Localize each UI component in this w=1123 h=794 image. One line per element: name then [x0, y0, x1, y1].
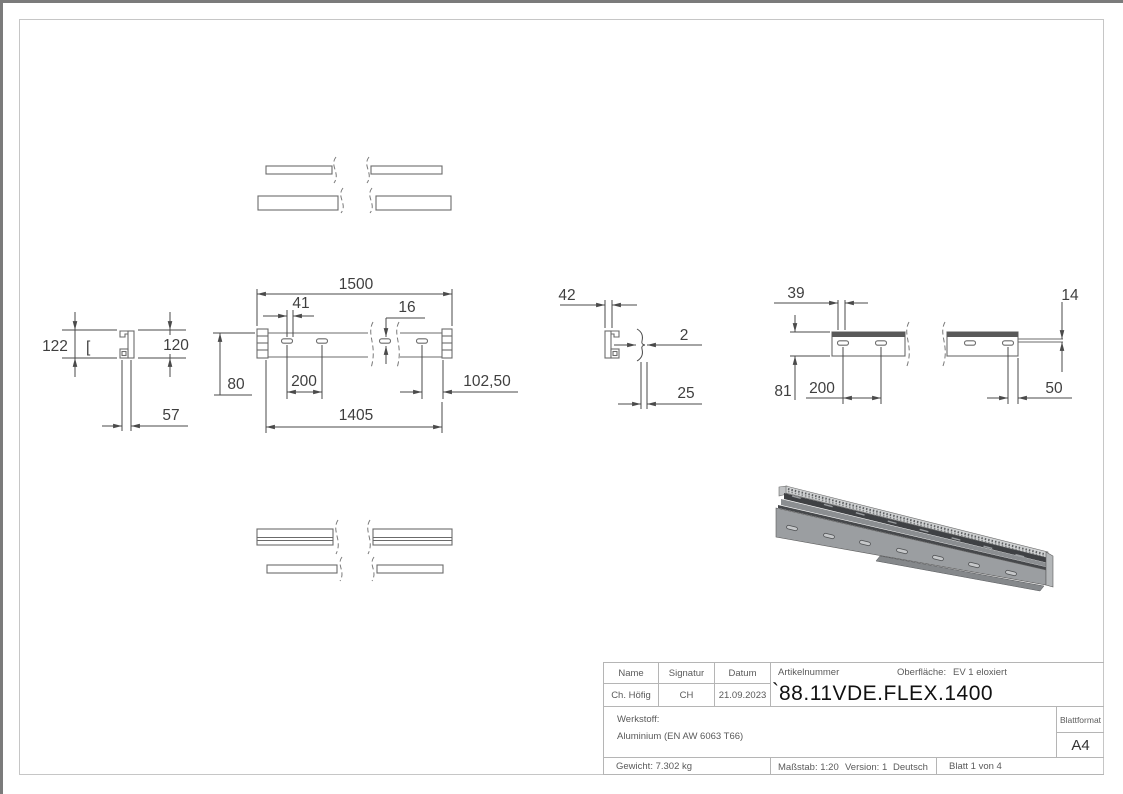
- dim-lip: 14: [1061, 287, 1079, 304]
- tb-material-value: Aluminium (EN AW 6063 T66): [617, 731, 743, 742]
- drawing-sheet: { "drawing": { "dims": { "total_length":…: [0, 0, 1123, 794]
- dim-slot-size: 16: [398, 299, 415, 316]
- tb-header-date: Datum: [715, 662, 771, 684]
- tb-language: Deutsch: [893, 762, 928, 773]
- dim-pitch-front: 200: [291, 373, 317, 390]
- tb-header-name: Name: [603, 662, 659, 684]
- tb-material-label: Werkstoff:: [617, 714, 659, 725]
- slot-hole: [417, 339, 428, 343]
- dim-height-inner: 120: [163, 337, 189, 354]
- tb-sheet: Blatt 1 von 4: [937, 758, 1104, 775]
- tb-weight: Gewicht: 7.302 kg: [603, 758, 771, 775]
- dim-back-offset: 39: [787, 285, 804, 302]
- tb-scale: Maßstab: 1:20: [778, 762, 839, 773]
- isometric-render: [776, 486, 1053, 591]
- tb-surface-value: EV 1 eloxiert: [953, 667, 1007, 678]
- tb-article-number: 88.11VDE.FLEX.1400: [779, 682, 993, 706]
- dim-total-length: 1500: [339, 276, 374, 293]
- back-view: 39 14 81 200 50: [774, 285, 1079, 404]
- dim-depth: 57: [162, 407, 179, 424]
- dim-end-offset: 102,50: [463, 373, 511, 390]
- dim-inner-length: 1405: [339, 407, 373, 424]
- dim-gap: 25: [677, 385, 694, 402]
- tb-format-label: Blattformat: [1056, 707, 1104, 733]
- dim-base: 80: [227, 376, 245, 393]
- tb-value-name: Ch. Höfig: [603, 684, 659, 707]
- dim-back-height: 81: [774, 383, 791, 400]
- tb-version: Version: 1: [845, 762, 887, 773]
- bottom-view: [257, 520, 452, 581]
- rail-end-cap: [1046, 552, 1053, 587]
- section-view-left: 122 [ 120 57: [42, 312, 189, 431]
- tb-value-date: 21.09.2023: [715, 684, 771, 707]
- dim-height-outer: 122: [42, 338, 68, 355]
- tb-article-label: Artikelnummer: [778, 667, 839, 678]
- slot-hole: [380, 339, 391, 343]
- section-bracket: [: [86, 339, 91, 356]
- slot-hole: [282, 339, 293, 343]
- section-view-middle: 42 2 25: [558, 287, 702, 409]
- dim-first-hole: 41: [292, 295, 309, 312]
- dim-wall-thickness: 2: [680, 327, 689, 344]
- tb-header-signature: Signatur: [659, 662, 715, 684]
- dim-back-end-offset: 50: [1045, 380, 1063, 397]
- tb-value-signature: CH: [659, 684, 715, 707]
- tb-format-value: A4: [1056, 733, 1104, 758]
- dim-section-width: 42: [558, 287, 575, 304]
- dim-pitch-back: 200: [809, 380, 835, 397]
- slot-hole: [317, 339, 328, 343]
- tb-surface-label: Oberfläche:: [897, 667, 946, 678]
- top-view: [258, 157, 451, 213]
- front-view: 1500 41 16 200 102,50 1405 80: [213, 276, 518, 433]
